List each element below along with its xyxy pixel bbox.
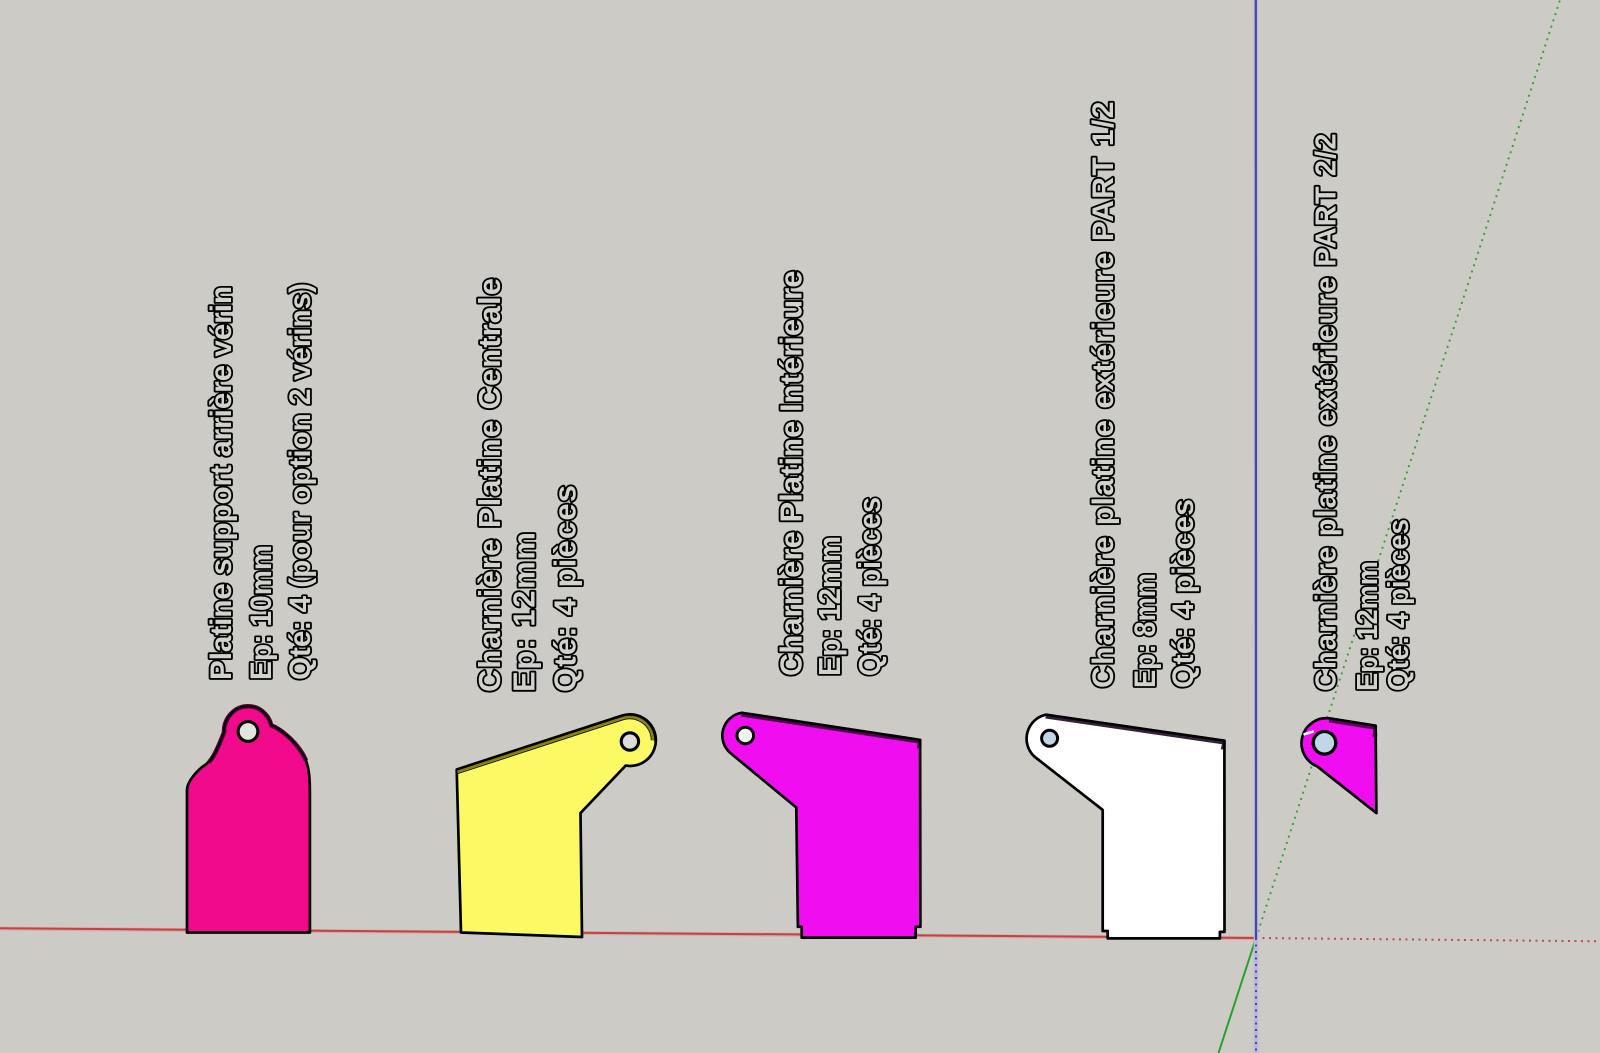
svg-text:Platine support arrière vérin: Platine support arrière vérin xyxy=(205,286,238,680)
svg-text:Charnière platine extérieure P: Charnière platine extérieure PART 2/2 xyxy=(1311,134,1343,692)
svg-text:Ep: 12mm: Ep: 12mm xyxy=(507,532,542,692)
svg-text:Qté: 4 pièces: Qté: 4 pièces xyxy=(1383,519,1415,691)
svg-text:Ep: 8mm: Ep: 8mm xyxy=(1129,573,1162,688)
svg-text:Charnière Platine Intérieure: Charnière Platine Intérieure xyxy=(774,271,809,677)
svg-text:Qté: 4 (pour option 2 vérins): Qté: 4 (pour option 2 vérins) xyxy=(284,283,317,680)
svg-text:Qté: 4 pièces: Qté: 4 pièces xyxy=(852,497,887,676)
svg-text:Ep: 12mm: Ep: 12mm xyxy=(1352,561,1384,691)
svg-text:Ep: 10mm: Ep: 10mm xyxy=(245,545,278,680)
svg-text:Ep: 12mm: Ep: 12mm xyxy=(812,536,847,676)
svg-text:Charnière platine extérieure P: Charnière platine extérieure PART 1/2 xyxy=(1087,102,1120,689)
svg-text:Charnière Platine Centrale: Charnière Platine Centrale xyxy=(472,278,507,692)
svg-text:Qté: 4 pièces: Qté: 4 pièces xyxy=(1167,499,1200,688)
